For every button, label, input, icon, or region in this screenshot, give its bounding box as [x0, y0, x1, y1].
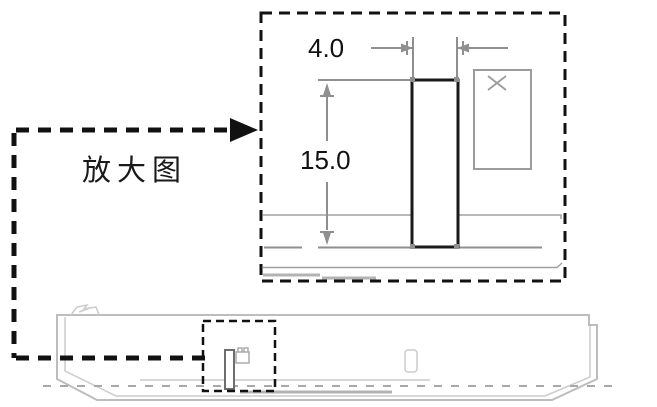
detail-view: 4.0 15.0: [261, 13, 565, 281]
device-inner-contour: [65, 317, 590, 396]
height-dimension-value: 15.0: [300, 145, 351, 175]
device-connector-protrusion: [225, 348, 249, 389]
width-dimension-value: 4.0: [308, 33, 344, 63]
dimension-height: 15.0: [300, 83, 351, 245]
device-side-view: [43, 305, 612, 400]
x-mark-icon: [488, 76, 506, 90]
magnified-view-label: 放大图: [82, 154, 187, 187]
detail-wall-line-low: [263, 263, 562, 268]
connector-rib-rect: [412, 80, 458, 247]
technical-drawing: 放大图 4.0: [0, 0, 657, 407]
device-top-tab: [71, 305, 99, 315]
dim-arrow-up-icon: [323, 83, 332, 97]
neighbor-block: [474, 70, 531, 169]
arrow-right-icon: [230, 118, 258, 142]
drawing-svg: 放大图 4.0: [0, 0, 657, 407]
device-slot: [405, 350, 417, 372]
dim-arrow-down-icon: [323, 231, 332, 245]
dimension-width: 4.0: [308, 33, 508, 78]
